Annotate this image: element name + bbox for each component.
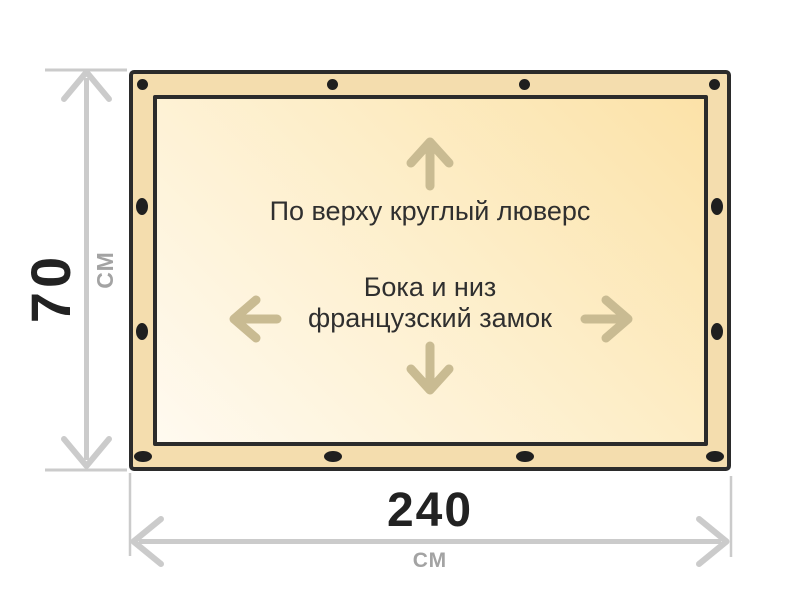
sides-bottom-note-line2: французский замок [308,303,552,333]
grommet-top-1 [137,79,148,90]
diagram-canvas: По верху круглый люверс Бока и низ франц… [0,0,800,600]
width-value-label: 240 [129,486,731,536]
grommet-bottom-3 [516,451,534,462]
height-value-label: 70 [23,218,79,358]
grommet-top-4 [709,79,720,90]
grommet-top-2 [327,79,338,90]
sides-bottom-note: Бока и низ французский замок [129,272,731,334]
tarp-outline [129,70,731,471]
height-unit-label: СМ [93,230,117,310]
grommet-bottom-4 [706,451,724,462]
grommet-bottom-1 [134,451,152,462]
grommet-bottom-2 [324,451,342,462]
width-unit-label: СМ [129,549,731,573]
sides-bottom-note-line1: Бока и низ [364,272,497,302]
top-grommet-note: По верху круглый люверс [129,196,731,227]
tarp-inner-panel [153,95,708,446]
grommet-top-3 [519,79,530,90]
